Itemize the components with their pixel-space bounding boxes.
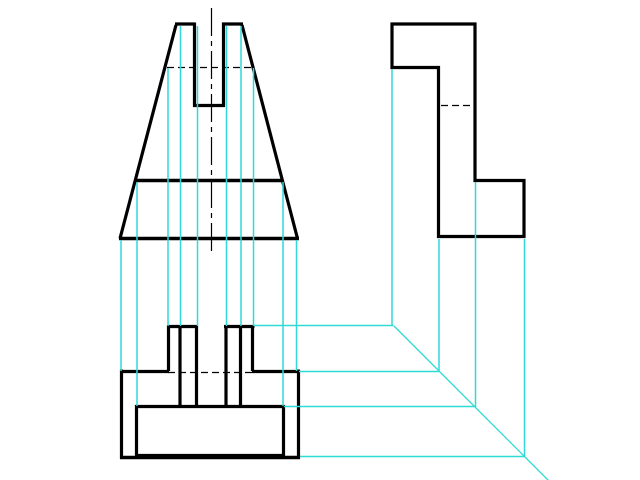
front-slope-right bbox=[242, 25, 298, 239]
side-view-outline bbox=[391, 23, 526, 239]
projection-lines-side-to-miter bbox=[392, 69, 525, 457]
projection-lines-front-to-top bbox=[121, 26, 297, 406]
drawing-canvas bbox=[0, 0, 640, 480]
projection-lines-top-to-miter bbox=[254, 326, 525, 457]
front-view-outline bbox=[119, 23, 299, 239]
top-view-outline bbox=[120, 325, 300, 459]
projection-svg bbox=[0, 0, 640, 480]
